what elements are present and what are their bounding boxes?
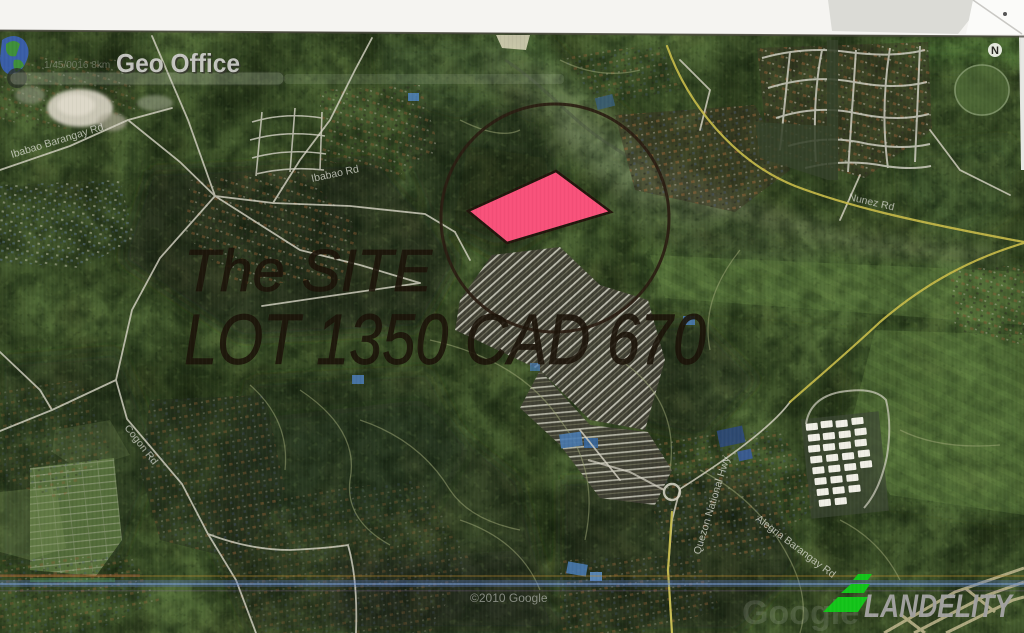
svg-text:N: N xyxy=(991,45,999,57)
